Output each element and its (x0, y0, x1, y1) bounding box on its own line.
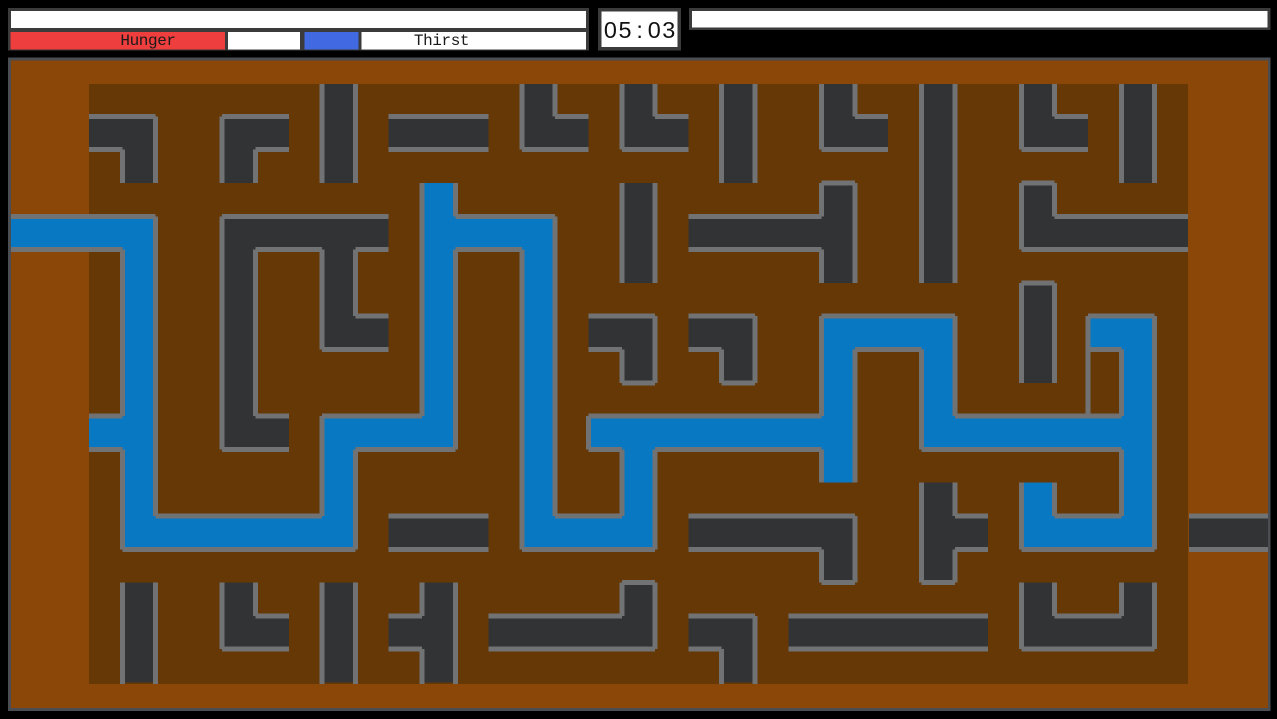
svg-text:5: 5 (618, 17, 631, 43)
svg-text:0: 0 (648, 17, 661, 43)
svg-text:Thirst: Thirst (414, 32, 469, 50)
svg-text:Hunger: Hunger (120, 32, 175, 50)
svg-text:3: 3 (662, 17, 675, 43)
svg-text:0: 0 (604, 17, 617, 43)
svg-text::: : (636, 17, 643, 43)
